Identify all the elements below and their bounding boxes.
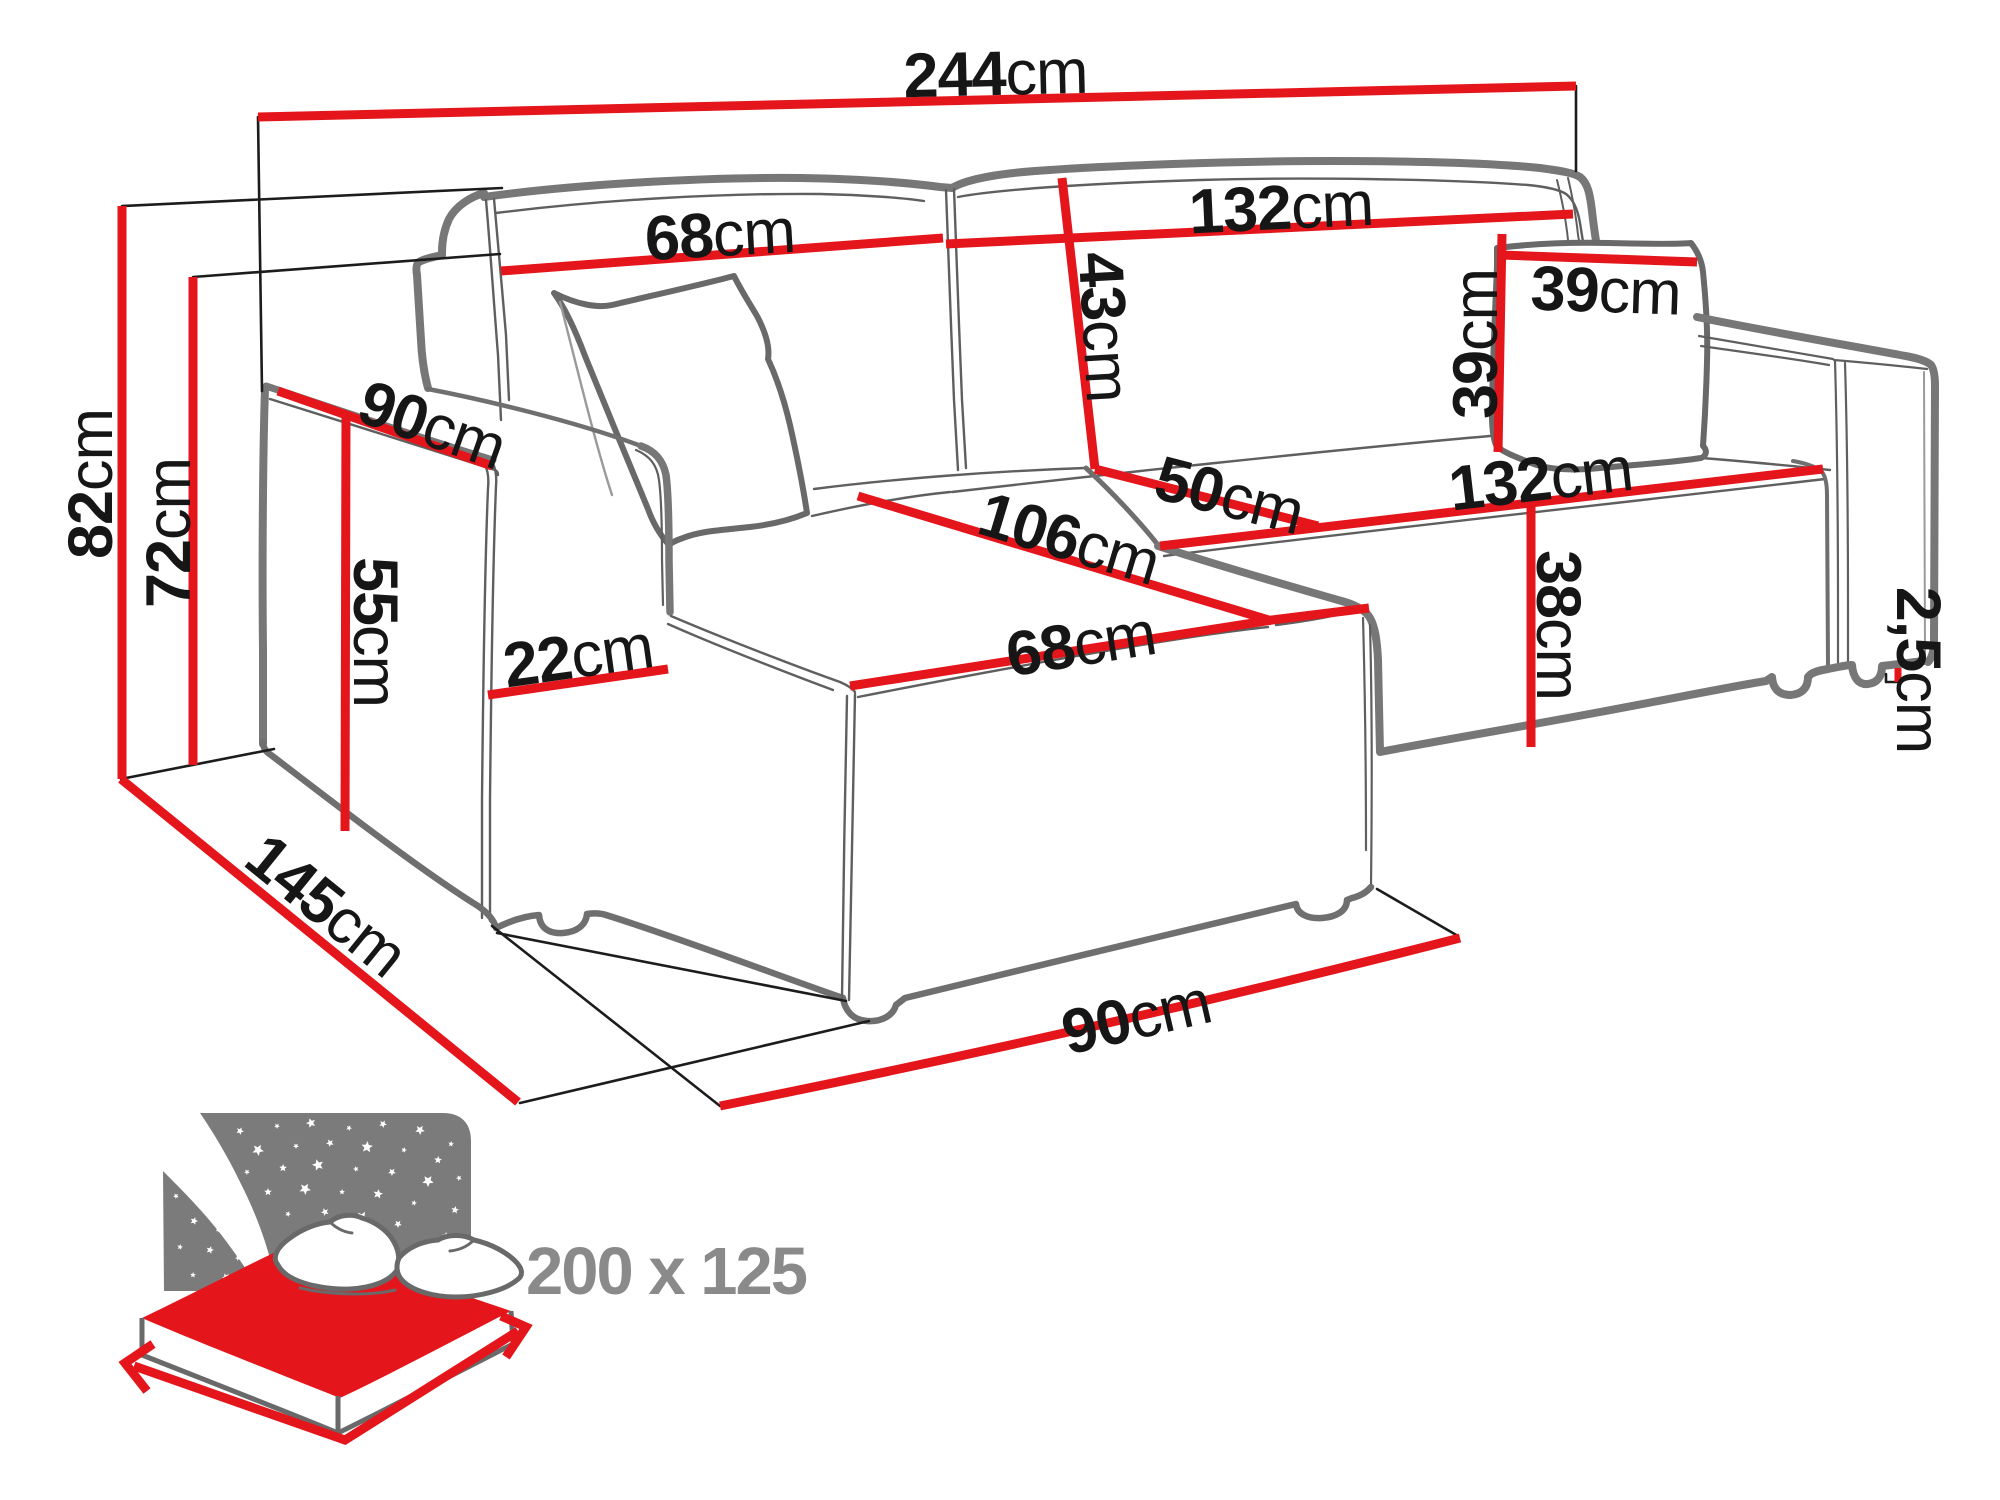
svg-text:43cm: 43cm <box>1065 250 1143 404</box>
svg-text:244cm: 244cm <box>903 37 1089 111</box>
svg-text:22cm: 22cm <box>499 611 657 701</box>
svg-text:50cm: 50cm <box>1148 443 1311 548</box>
svg-text:132cm: 132cm <box>1187 169 1374 248</box>
svg-text:55cm: 55cm <box>340 557 410 707</box>
svg-text:39cm: 39cm <box>1530 253 1682 328</box>
svg-text:200 x 125: 200 x 125 <box>526 1234 807 1309</box>
svg-text:90cm: 90cm <box>1055 967 1217 1069</box>
svg-text:82cm: 82cm <box>56 409 126 559</box>
svg-text:132cm: 132cm <box>1445 434 1636 525</box>
svg-text:90cm: 90cm <box>350 367 515 483</box>
svg-text:106cm: 106cm <box>971 479 1167 599</box>
svg-text:2,5cm: 2,5cm <box>1883 587 1953 754</box>
svg-text:39cm: 39cm <box>1441 269 1511 419</box>
svg-text:38cm: 38cm <box>1523 550 1593 700</box>
svg-text:68cm: 68cm <box>643 196 797 274</box>
svg-text:68cm: 68cm <box>1001 598 1160 690</box>
svg-text:72cm: 72cm <box>134 458 204 608</box>
